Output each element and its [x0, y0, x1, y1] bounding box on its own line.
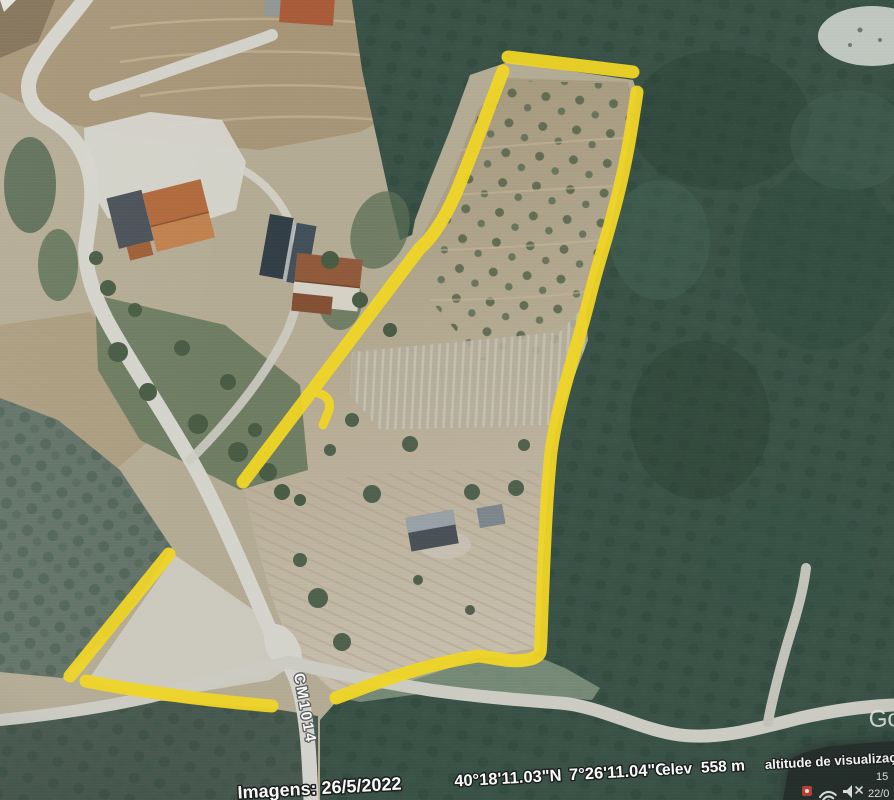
satellite-map-canvas[interactable]: CM1014 Go 15 22/0 Imagens: 26/5/2022 40°…: [0, 0, 894, 800]
elevation-value: 558 m: [700, 757, 745, 776]
tray-clock-time[interactable]: 15: [876, 771, 888, 783]
tray-clock-date[interactable]: 22/0: [868, 788, 889, 800]
notification-red-icon[interactable]: [802, 786, 812, 796]
elevation-label: elev: [662, 760, 693, 779]
photo-grain: [0, 0, 894, 800]
screen-photo: CM1014 Go 15 22/0 Imagens: 26/5/2022 40°…: [0, 0, 894, 800]
